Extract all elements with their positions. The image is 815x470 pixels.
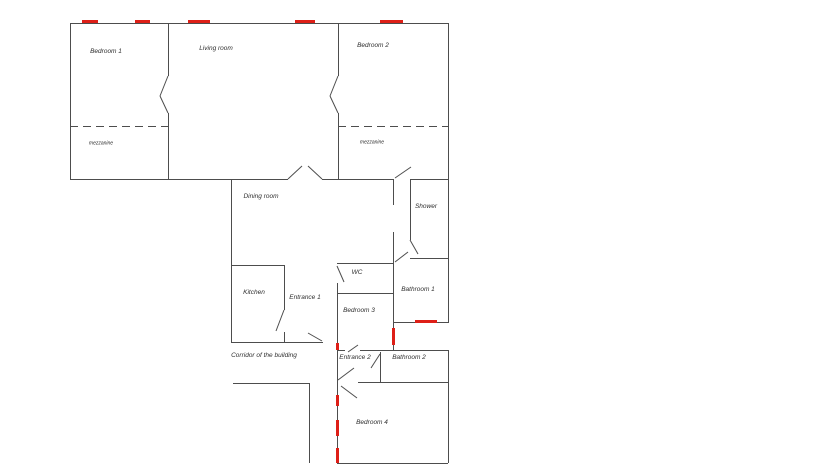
page: { "document": { "type": "apartment-floor…: [0, 0, 815, 470]
wall-segment: [168, 113, 169, 180]
room-label-bathroom-1: Bathroom 1: [401, 287, 435, 294]
wall-segment: [410, 179, 411, 240]
wall-segment: [338, 113, 339, 180]
wall-segment: [70, 23, 71, 180]
wall-segment: [337, 350, 345, 351]
door-swing-line: [160, 96, 168, 113]
window-marker: [336, 395, 339, 406]
wall-segment: [70, 23, 448, 24]
room-label-bedroom-2: Bedroom 2: [357, 43, 389, 50]
mezzanine-dashed-line: [70, 126, 168, 127]
door-swing-line: [395, 252, 408, 262]
wall-segment: [231, 342, 323, 343]
room-label-mezzanine-2: mezzanine: [360, 141, 384, 146]
window-marker: [336, 343, 339, 350]
mezzanine-dashed-line: [338, 126, 448, 127]
wall-segment: [309, 383, 310, 463]
floor-plan-canvas: Bedroom 1Living roomBedroom 2mezzanineme…: [0, 0, 815, 470]
room-label-mezzanine-1: mezzanine: [89, 142, 113, 147]
room-label-wc: WC: [352, 270, 363, 277]
room-label-dining-room: Dining room: [243, 194, 278, 201]
door-swing-line: [160, 76, 168, 96]
wall-segment: [360, 350, 448, 351]
wall-segment: [410, 258, 449, 259]
wall-segment: [322, 179, 394, 180]
window-marker: [295, 20, 315, 23]
wall-segment: [168, 23, 169, 76]
door-swing-line: [276, 310, 284, 331]
wall-segment: [231, 179, 232, 343]
window-marker: [336, 448, 339, 463]
door-swing-line: [338, 368, 354, 380]
room-label-bathroom-2: Bathroom 2: [392, 355, 426, 362]
wall-segment: [337, 293, 393, 294]
room-label-kitchen: Kitchen: [243, 290, 265, 297]
door-swing-line: [330, 96, 338, 113]
wall-segment: [393, 179, 394, 205]
wall-segment: [337, 263, 393, 264]
wall-segment: [231, 265, 284, 266]
door-swing-layer: [0, 0, 815, 470]
door-swing-line: [308, 333, 322, 341]
wall-segment: [337, 463, 448, 464]
room-label-entrance-2: Entrance 2: [339, 355, 370, 362]
wall-segment: [358, 382, 448, 383]
room-label-bedroom-3: Bedroom 3: [343, 308, 375, 315]
window-marker: [415, 320, 437, 323]
door-swing-line: [410, 240, 418, 254]
window-marker: [336, 420, 339, 436]
window-marker: [82, 20, 98, 23]
door-swing-line: [337, 266, 344, 282]
door-swing-line: [395, 167, 411, 178]
wall-segment: [337, 283, 338, 343]
wall-segment: [410, 179, 448, 180]
door-swing-line: [308, 166, 322, 179]
door-swing-line: [348, 345, 358, 352]
room-label-shower: Shower: [415, 204, 437, 211]
window-marker: [392, 328, 395, 345]
wall-segment: [284, 332, 285, 343]
wall-segment: [337, 350, 338, 382]
door-swing-line: [341, 386, 357, 398]
wall-segment: [380, 352, 381, 382]
window-marker: [188, 20, 210, 23]
door-swing-line: [330, 76, 338, 96]
window-marker: [380, 20, 403, 23]
wall-segment: [70, 179, 288, 180]
wall-segment: [448, 350, 449, 463]
wall-segment: [233, 383, 309, 384]
room-label-living-room: Living room: [199, 46, 233, 53]
room-label-bedroom-4: Bedroom 4: [356, 420, 388, 427]
room-label-entrance-1: Entrance 1: [289, 295, 320, 302]
room-label-bedroom-1: Bedroom 1: [90, 49, 122, 56]
wall-segment: [448, 23, 449, 323]
door-swing-line: [288, 166, 302, 179]
door-swing-line: [371, 354, 380, 368]
wall-segment: [338, 23, 339, 76]
room-label-corridor: Corridor of the building: [231, 353, 297, 360]
wall-segment: [284, 265, 285, 310]
window-marker: [135, 20, 150, 23]
